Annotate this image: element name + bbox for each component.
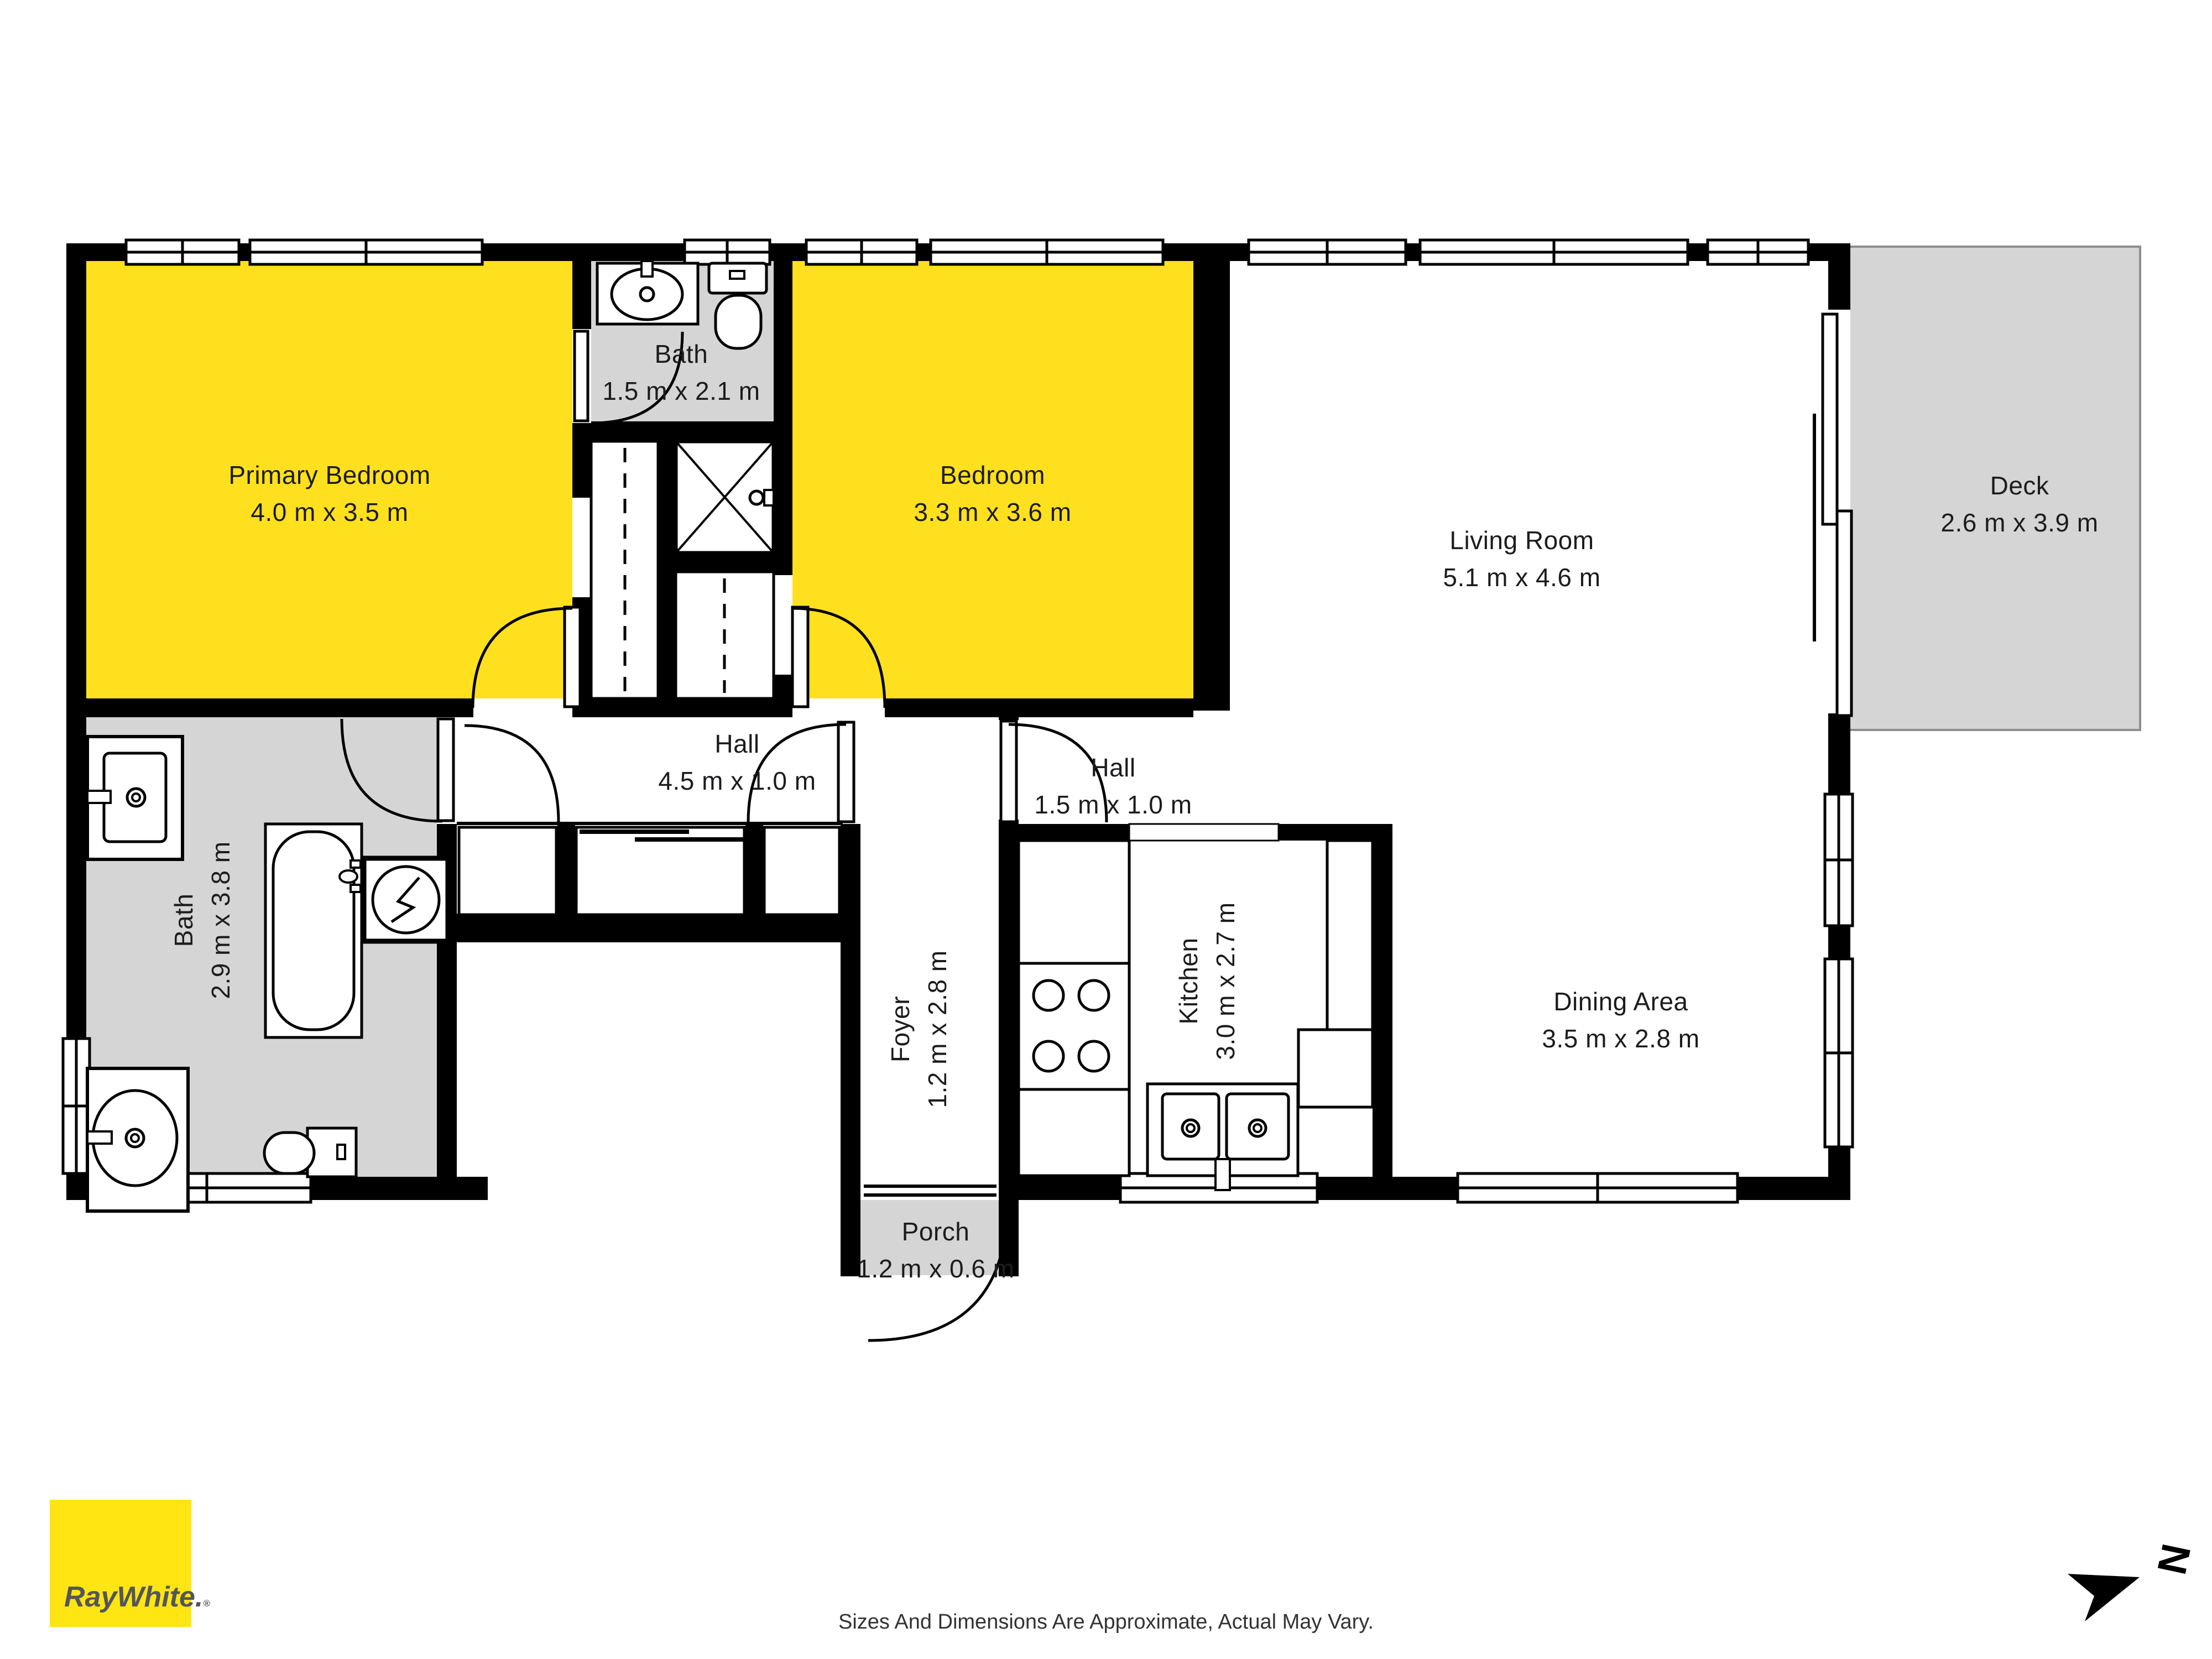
room-name: Hall bbox=[658, 726, 816, 763]
room-name: Bedroom bbox=[914, 457, 1071, 494]
room-name: Bath bbox=[602, 336, 760, 373]
shower-icon bbox=[676, 441, 774, 553]
room-dims: 3.5 m x 2.8 m bbox=[1542, 1020, 1699, 1057]
closet bbox=[676, 572, 774, 698]
kitchen-sink-icon bbox=[1147, 1084, 1298, 1190]
room-label-ensuite-bath: Bath 1.5 m x 2.1 m bbox=[602, 336, 760, 410]
window bbox=[1825, 794, 1853, 926]
window bbox=[685, 240, 770, 264]
window bbox=[1420, 240, 1688, 264]
sliding-door bbox=[1813, 310, 1851, 716]
room-name: Hall bbox=[1034, 749, 1192, 786]
room-label-hall-small: Hall 1.5 m x 1.0 m bbox=[1034, 749, 1192, 823]
hall-cupboards bbox=[459, 827, 839, 915]
room-dims: 4.5 m x 1.0 m bbox=[658, 763, 816, 800]
room-label-deck: Deck 2.6 m x 3.9 m bbox=[1940, 467, 2098, 541]
window bbox=[250, 240, 482, 264]
room-label-bedroom: Bedroom 3.3 m x 3.6 m bbox=[914, 457, 1071, 531]
room-dims: 1.5 m x 2.1 m bbox=[602, 373, 760, 410]
stove-icon bbox=[1019, 963, 1129, 1089]
window bbox=[931, 240, 1163, 264]
room-name: Porch bbox=[857, 1213, 1014, 1250]
room-dims: 1.5 m x 1.0 m bbox=[1034, 786, 1192, 823]
floorplan-page: N Primary Bedroom 4.0 m x 3.5 m Bath 1.5… bbox=[0, 0, 2212, 1659]
room-name: Deck bbox=[1940, 467, 2098, 504]
room-name: Living Room bbox=[1443, 522, 1600, 559]
room-dims: 2.6 m x 3.9 m bbox=[1940, 504, 2098, 541]
room-dims: 5.1 m x 4.6 m bbox=[1443, 559, 1600, 596]
closet bbox=[591, 441, 658, 698]
room-label-main-bath: Bath 2.9 m x 3.8 m bbox=[165, 841, 239, 999]
room-dims: 1.2 m x 0.6 m bbox=[857, 1250, 1014, 1287]
toilet-icon bbox=[264, 1128, 356, 1177]
bathroom-sink-icon bbox=[597, 261, 698, 324]
disclaimer-text: Sizes And Dimensions Are Approximate, Ac… bbox=[0, 1610, 2212, 1634]
room-label-porch: Porch 1.2 m x 0.6 m bbox=[857, 1213, 1014, 1287]
room-name: Bath bbox=[165, 841, 202, 999]
raywhite-logo: RayWhite.® bbox=[50, 1500, 191, 1627]
bathtub-icon bbox=[265, 824, 362, 1037]
window bbox=[1458, 1173, 1738, 1202]
window bbox=[126, 240, 239, 264]
room-label-hall-main: Hall 4.5 m x 1.0 m bbox=[658, 726, 816, 800]
room-dims: 3.3 m x 3.6 m bbox=[914, 494, 1071, 531]
raywhite-logo-text: RayWhite.® bbox=[64, 1580, 210, 1614]
window bbox=[1825, 959, 1853, 1147]
room-label-living-room: Living Room 5.1 m x 4.6 m bbox=[1443, 522, 1600, 596]
room-label-foyer: Foyer 1.2 m x 2.8 m bbox=[882, 950, 956, 1108]
room-name: Dining Area bbox=[1542, 983, 1699, 1020]
window bbox=[1708, 240, 1808, 264]
registered-mark: ® bbox=[203, 1598, 210, 1609]
window bbox=[63, 1039, 90, 1173]
vanity-sink-icon bbox=[87, 1068, 188, 1211]
north-label: N bbox=[2148, 1540, 2199, 1579]
room-name: Kitchen bbox=[1170, 902, 1207, 1060]
room-name: Primary Bedroom bbox=[228, 457, 430, 494]
room-dims: 3.0 m x 2.7 m bbox=[1207, 902, 1244, 1060]
window bbox=[806, 240, 917, 264]
room-label-kitchen: Kitchen 3.0 m x 2.7 m bbox=[1170, 902, 1244, 1060]
room-dims: 1.2 m x 2.8 m bbox=[919, 950, 956, 1108]
room-label-primary-bedroom: Primary Bedroom 4.0 m x 3.5 m bbox=[228, 457, 430, 531]
room-dims: 2.9 m x 3.8 m bbox=[202, 841, 239, 999]
room-name: Foyer bbox=[882, 950, 919, 1108]
floorplan-drawing: N bbox=[0, 0, 2212, 1659]
room-label-dining-area: Dining Area 3.5 m x 2.8 m bbox=[1542, 983, 1699, 1057]
room-dims: 4.0 m x 3.5 m bbox=[228, 494, 430, 531]
water-heater-icon bbox=[364, 858, 448, 941]
north-arrow-icon: N bbox=[2068, 1540, 2200, 1621]
window bbox=[1249, 240, 1406, 264]
